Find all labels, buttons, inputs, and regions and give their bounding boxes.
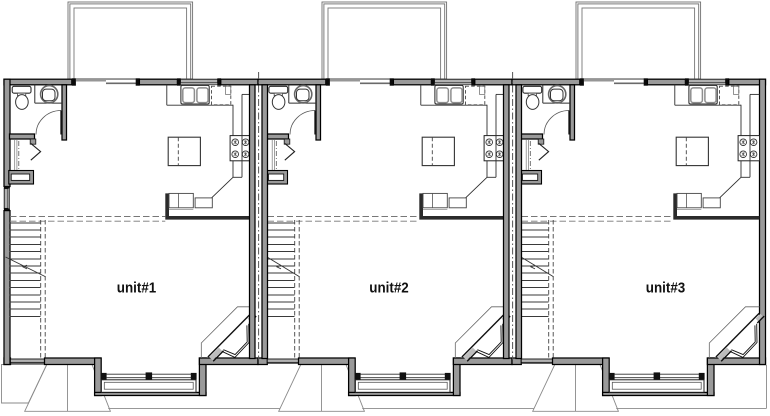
svg-text:unit#3: unit#3 <box>646 279 686 296</box>
svg-text:unit#1: unit#1 <box>117 279 157 296</box>
svg-text:unit#2: unit#2 <box>369 279 409 296</box>
